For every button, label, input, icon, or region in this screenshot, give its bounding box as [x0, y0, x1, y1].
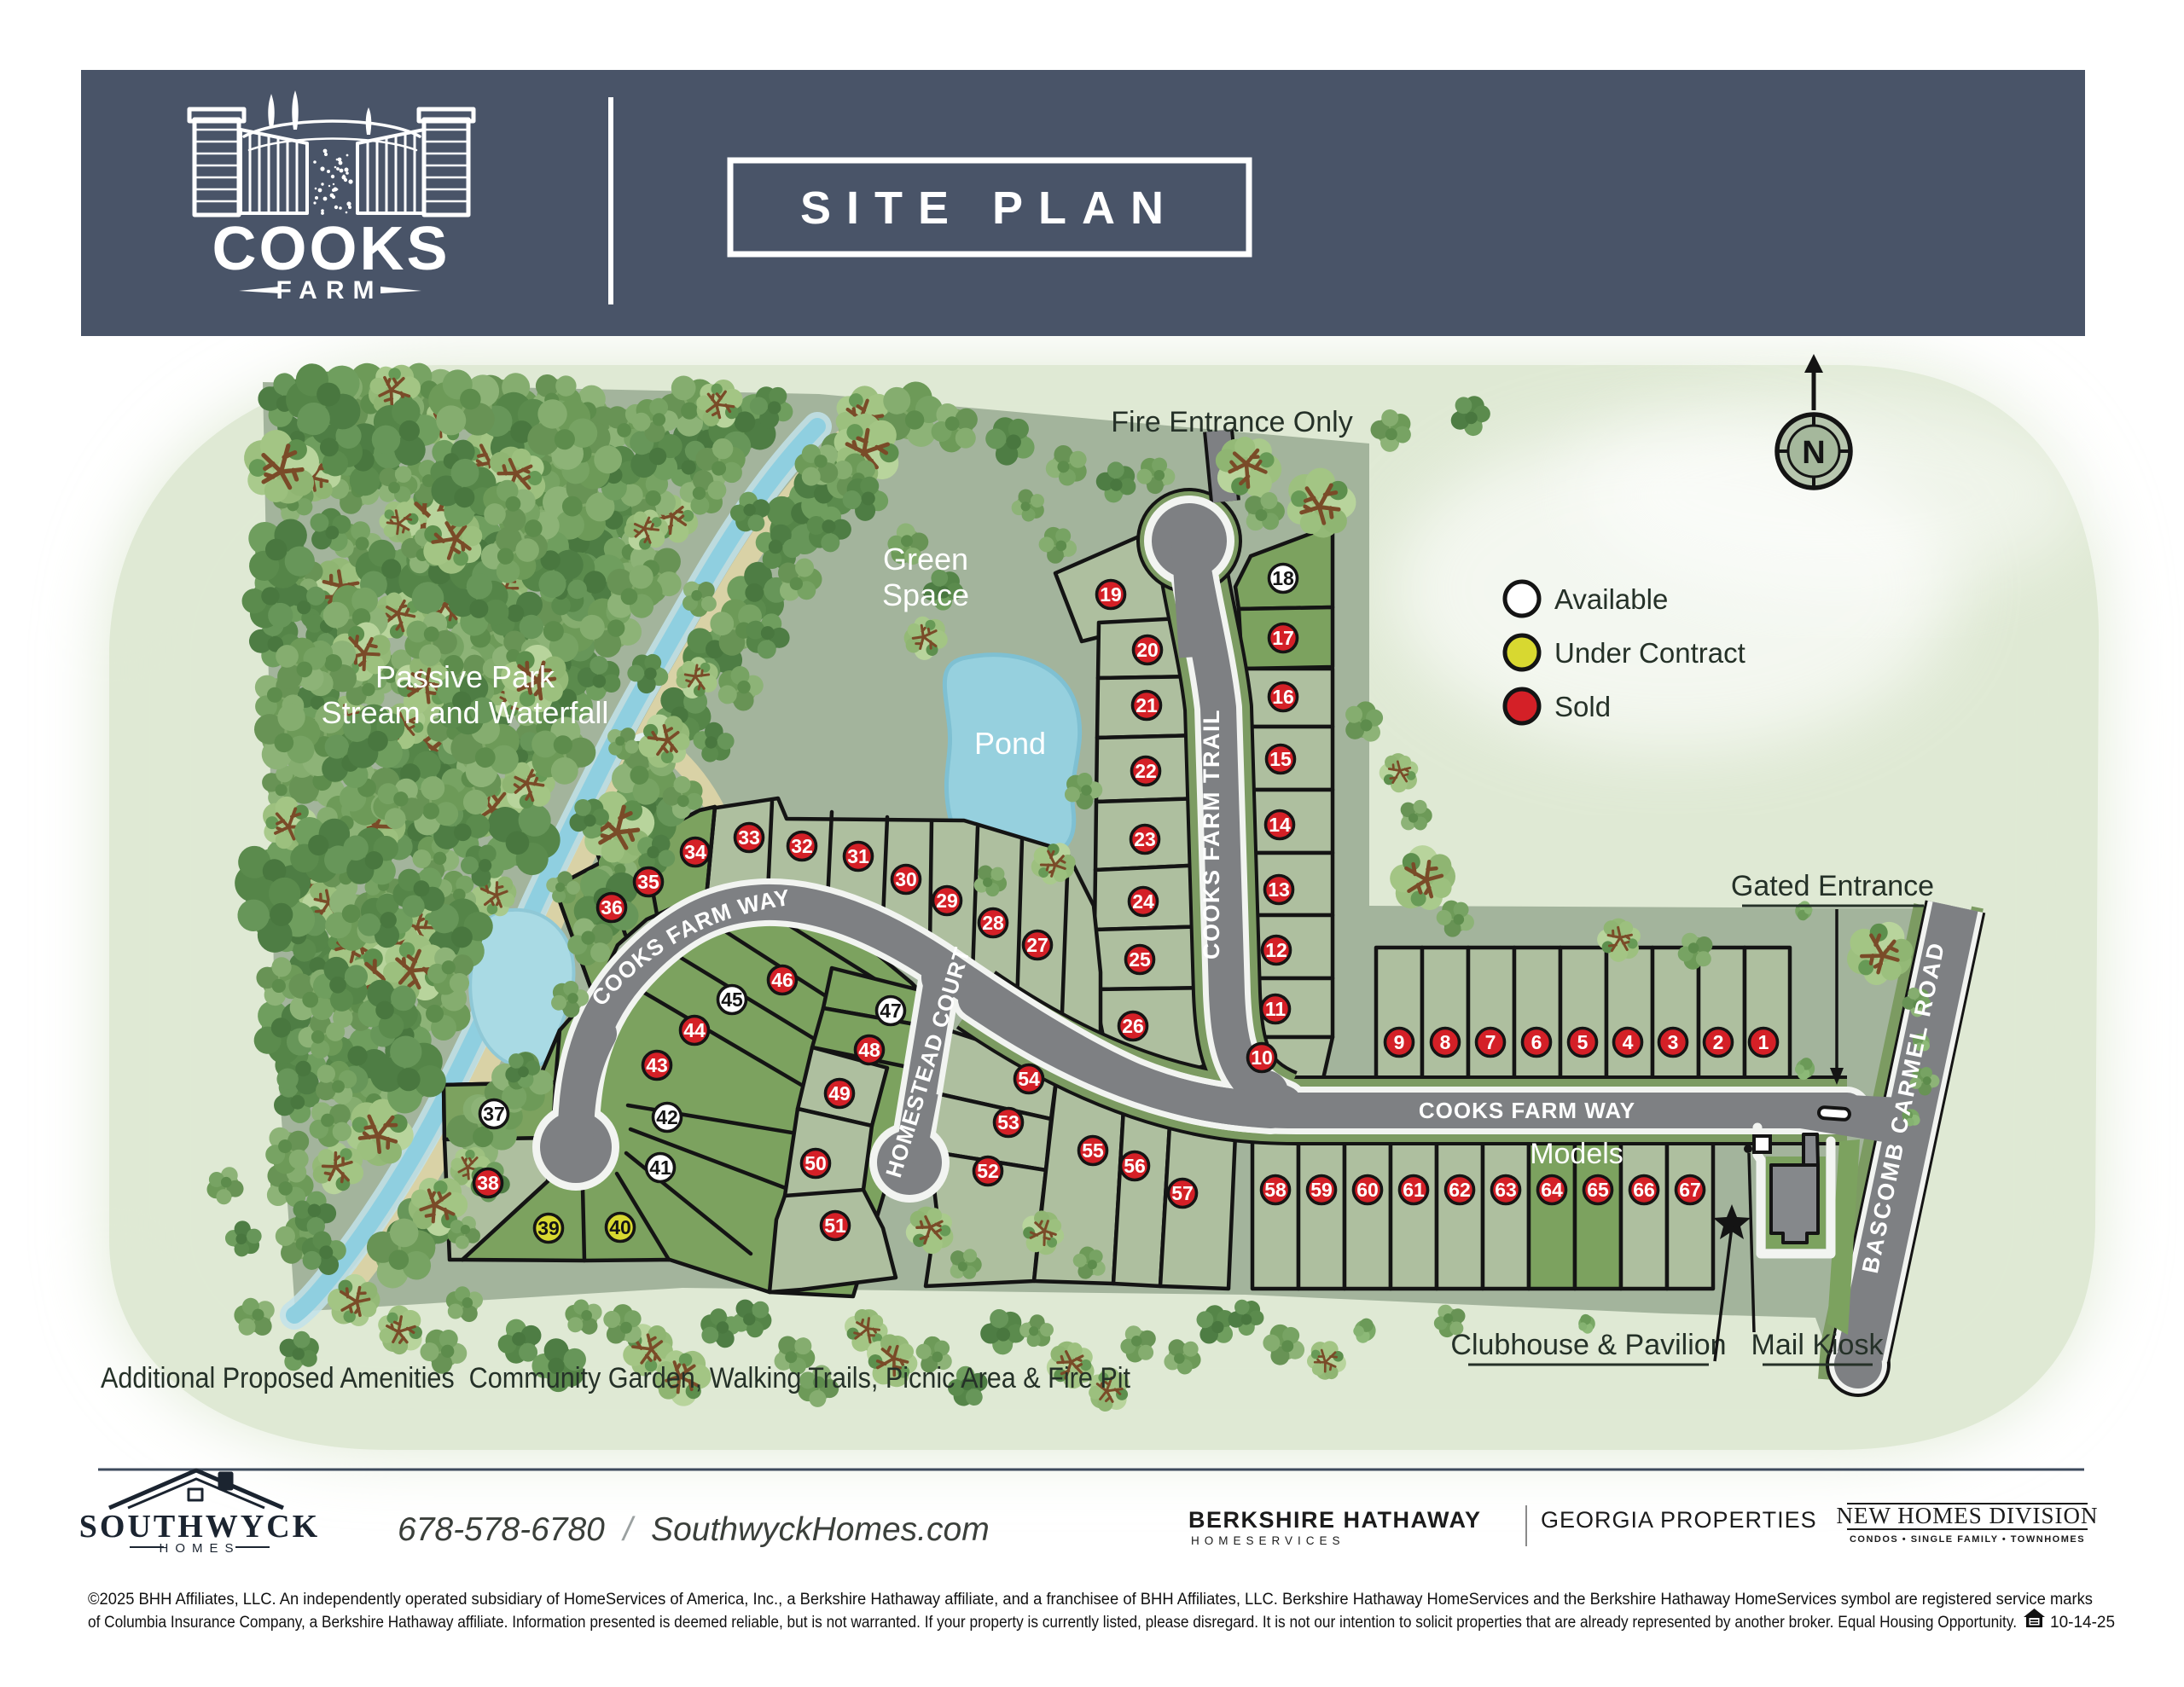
svg-text:40: 40: [609, 1216, 631, 1238]
svg-text:29: 29: [936, 890, 958, 912]
svg-text:60: 60: [1356, 1179, 1379, 1201]
svg-text:58: 58: [1264, 1179, 1287, 1201]
svg-text:9: 9: [1394, 1031, 1405, 1053]
svg-text:48: 48: [858, 1039, 880, 1061]
svg-text:678-578-6780 / SouthwyckHome: 678-578-6780 / SouthwyckHomes.com: [398, 1511, 990, 1548]
svg-text:63: 63: [1495, 1179, 1517, 1201]
svg-text:65: 65: [1587, 1179, 1609, 1201]
svg-text:6: 6: [1531, 1031, 1542, 1053]
svg-text:67: 67: [1679, 1179, 1701, 1201]
svg-text:Pond: Pond: [974, 726, 1046, 761]
svg-text:25: 25: [1129, 948, 1151, 971]
svg-text:Under Contract: Under Contract: [1554, 637, 1745, 669]
svg-text:57: 57: [1171, 1182, 1194, 1204]
svg-text:Mail Kiosk: Mail Kiosk: [1751, 1329, 1885, 1361]
svg-text:12: 12: [1265, 939, 1287, 961]
svg-text:32: 32: [791, 835, 813, 857]
svg-text:11: 11: [1265, 998, 1287, 1020]
svg-text:15: 15: [1269, 748, 1292, 770]
svg-text:N: N: [1802, 435, 1825, 471]
svg-text:4: 4: [1623, 1031, 1634, 1053]
svg-text:59: 59: [1310, 1179, 1333, 1201]
svg-text:61: 61: [1403, 1179, 1425, 1201]
svg-text:38: 38: [477, 1172, 499, 1194]
svg-text:Sold: Sold: [1554, 691, 1611, 722]
svg-text:FARM: FARM: [276, 276, 383, 304]
svg-text:31: 31: [847, 845, 869, 867]
svg-text:66: 66: [1633, 1179, 1655, 1201]
svg-text:Passive Park: Passive Park: [375, 659, 555, 694]
svg-text:17: 17: [1272, 627, 1294, 649]
svg-text:22: 22: [1135, 760, 1157, 782]
svg-text:50: 50: [804, 1152, 827, 1174]
svg-text:20: 20: [1136, 639, 1159, 661]
svg-text:49: 49: [828, 1082, 851, 1104]
svg-text:COOKS: COOKS: [212, 215, 450, 283]
svg-text:of Columbia Insurance Company,: of Columbia Insurance Company, a Berkshi…: [88, 1614, 2017, 1632]
svg-text:41: 41: [649, 1157, 671, 1179]
svg-text:54: 54: [1018, 1068, 1040, 1090]
svg-text:Clubhouse & Pavilion: Clubhouse & Pavilion: [1450, 1329, 1726, 1361]
svg-text:33: 33: [738, 826, 760, 849]
svg-text:55: 55: [1082, 1139, 1104, 1162]
svg-text:28: 28: [982, 912, 1004, 934]
svg-text:52: 52: [977, 1160, 999, 1182]
svg-text:NEW HOMES DIVISION: NEW HOMES DIVISION: [1837, 1503, 2099, 1528]
svg-text:62: 62: [1449, 1179, 1471, 1201]
svg-text:27: 27: [1026, 934, 1048, 956]
svg-text:24: 24: [1132, 890, 1154, 913]
svg-text:45: 45: [721, 988, 743, 1011]
svg-text:SOUTHWYCK: SOUTHWYCK: [79, 1509, 320, 1545]
svg-text:21: 21: [1136, 694, 1158, 716]
svg-text:10: 10: [1251, 1046, 1273, 1069]
svg-text:SITE PLAN: SITE PLAN: [800, 183, 1179, 234]
svg-text:47: 47: [880, 1000, 902, 1022]
svg-text:44: 44: [683, 1019, 706, 1041]
svg-text:2: 2: [1713, 1031, 1724, 1053]
svg-text:30: 30: [895, 868, 917, 890]
svg-text:64: 64: [1541, 1179, 1563, 1201]
svg-text:39: 39: [537, 1217, 560, 1239]
svg-text:©2025 BHH Affiliates, LLC. An: ©2025 BHH Affiliates, LLC. An independen…: [88, 1591, 2093, 1609]
svg-text:46: 46: [771, 969, 793, 991]
svg-text:Stream and Waterfall: Stream and Waterfall: [322, 695, 609, 730]
svg-text:13: 13: [1268, 878, 1290, 901]
svg-text:56: 56: [1124, 1155, 1146, 1177]
svg-text:Available: Available: [1554, 583, 1668, 615]
svg-text:GEORGIA PROPERTIES: GEORGIA PROPERTIES: [1541, 1507, 1817, 1533]
svg-text:36: 36: [601, 896, 623, 919]
svg-text:34: 34: [684, 841, 706, 863]
svg-text:Fire Entrance Only: Fire Entrance Only: [1111, 406, 1352, 438]
svg-text:3: 3: [1668, 1031, 1679, 1053]
svg-text:Gated Entrance: Gated Entrance: [1731, 870, 1934, 902]
svg-text:COOKS FARM WAY: COOKS FARM WAY: [1419, 1098, 1635, 1123]
svg-text:18: 18: [1272, 567, 1294, 589]
svg-text:14: 14: [1269, 814, 1291, 836]
svg-text:16: 16: [1272, 686, 1294, 708]
svg-text:35: 35: [637, 871, 659, 893]
svg-text:COOKS FARM TRAIL: COOKS FARM TRAIL: [1199, 709, 1224, 959]
svg-text:5: 5: [1577, 1031, 1589, 1053]
svg-text:53: 53: [997, 1111, 1019, 1133]
svg-text:51: 51: [824, 1215, 846, 1237]
svg-text:Models: Models: [1530, 1138, 1623, 1170]
svg-text:HOMESERVICES: HOMESERVICES: [1191, 1534, 1345, 1547]
svg-text:10-14-25: 10-14-25: [2050, 1614, 2115, 1632]
svg-text:26: 26: [1122, 1015, 1144, 1037]
svg-text:8: 8: [1440, 1031, 1451, 1053]
svg-text:CONDOS • SINGLE FAMILY • TOWNH: CONDOS • SINGLE FAMILY • TOWNHOMES: [1850, 1534, 2085, 1545]
svg-text:HOMES: HOMES: [159, 1541, 240, 1556]
svg-text:37: 37: [483, 1103, 505, 1125]
svg-text:42: 42: [656, 1106, 678, 1128]
svg-text:7: 7: [1485, 1031, 1496, 1053]
svg-text:19: 19: [1100, 583, 1122, 606]
svg-text:1: 1: [1758, 1031, 1769, 1053]
svg-text:Green: Green: [883, 542, 968, 577]
svg-text:Space: Space: [882, 577, 969, 612]
svg-text:23: 23: [1134, 828, 1156, 850]
svg-text:BERKSHIRE HATHAWAY: BERKSHIRE HATHAWAY: [1188, 1507, 1482, 1533]
svg-text:Additional Proposed Amenities: Additional Proposed Amenities Community …: [101, 1362, 1130, 1394]
svg-text:43: 43: [646, 1054, 668, 1076]
